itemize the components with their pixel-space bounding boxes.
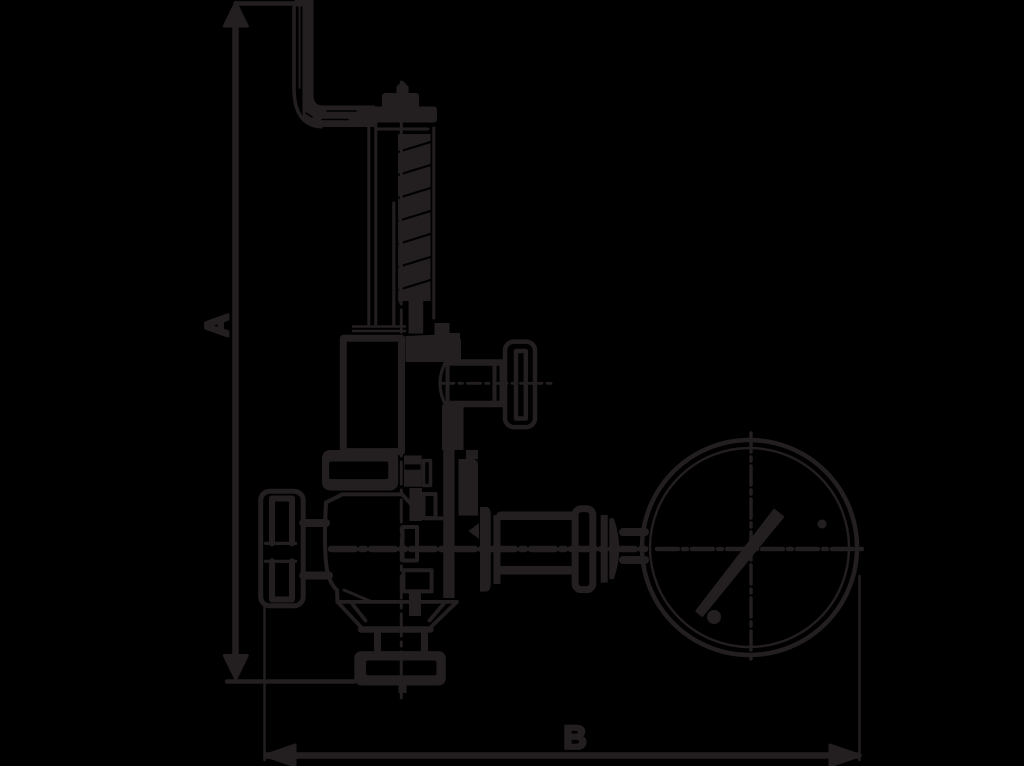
svg-text:B: B xyxy=(564,720,587,756)
svg-text:A: A xyxy=(199,314,235,337)
